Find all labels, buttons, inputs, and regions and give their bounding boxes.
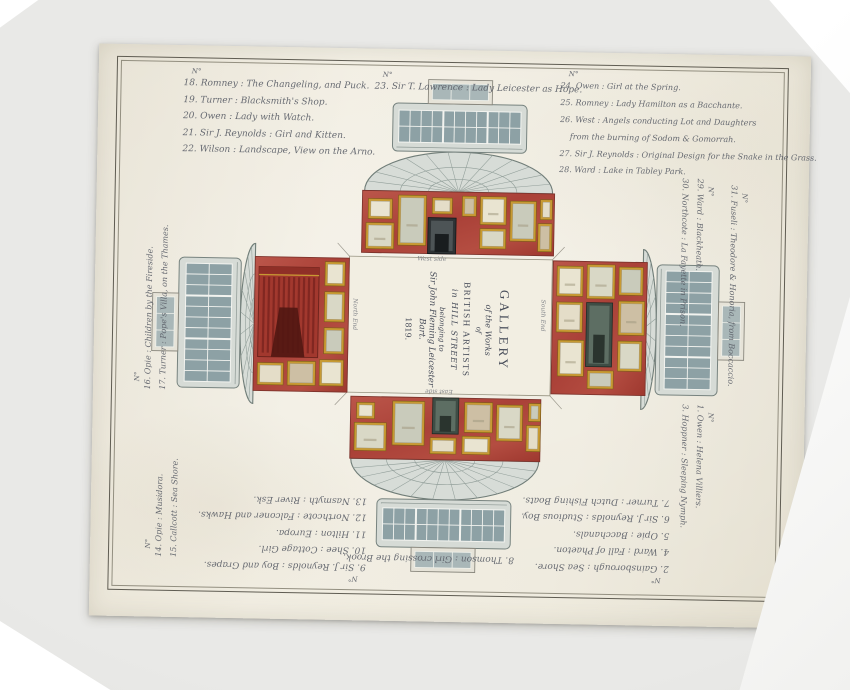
- painting-frame: [356, 402, 374, 418]
- title-line: Sir John Fleming Leicester Bart.: [415, 264, 437, 394]
- canvas-mark: [595, 284, 606, 286]
- catalogue-line: 29. Ward : Blackheath.: [689, 178, 706, 327]
- catalogue-line: 30. Northcote : La Fayette in Prison.: [675, 178, 692, 327]
- catalogue-items: 18. Romney : The Changeling, and Puck.19…: [182, 75, 376, 160]
- painting-frame: [526, 425, 540, 451]
- catalogue-items: 8. Thomson : Girl crossing the Brook.: [334, 548, 514, 568]
- canvas-mark: [565, 361, 575, 363]
- canvas-mark: [518, 224, 528, 226]
- canvas: [327, 264, 342, 283]
- canvas: [260, 365, 281, 382]
- canvas-mark: [402, 427, 415, 429]
- painting-frame: [432, 198, 452, 214]
- painting-frame: [392, 401, 425, 446]
- title-line: of the Works: [482, 265, 493, 395]
- catalogue-line: 17. Turner : Pope's Villa, on the Thames…: [156, 224, 174, 389]
- canvas: [531, 406, 538, 419]
- canvas-mark: [488, 213, 498, 215]
- painting-frame: [587, 371, 613, 389]
- catalogue-items: 14. Opie : Musidora.15. Callcott : Sea S…: [152, 458, 183, 557]
- catalogue-line: 3. Hoppner : Sleeping Nymph.: [675, 404, 692, 528]
- canvas: [356, 425, 383, 448]
- fold-line: [335, 392, 347, 405]
- canvas: [482, 231, 503, 246]
- title-line: belonging to: [436, 264, 446, 394]
- painting-frame: [618, 301, 645, 335]
- canvas: [327, 294, 342, 319]
- canvas: [621, 270, 640, 293]
- canvas-mark: [364, 439, 377, 441]
- catalogue-right-outer: N° 31. Fuseli : Theodore & Honoria, from…: [722, 185, 749, 387]
- catalogue-line: 1. Owen : Helena Villiers.: [690, 404, 707, 528]
- wall-south: [551, 261, 647, 396]
- painting-frame: [619, 267, 644, 295]
- painting-frame: [617, 341, 642, 371]
- canvas: [368, 225, 391, 246]
- canvas-mark: [473, 420, 484, 422]
- photo-background: N° 18. Romney : The Changeling, and Puck…: [0, 0, 850, 690]
- catalogue-line: 7. Turner : Dutch Fishing Boats.: [492, 491, 670, 511]
- wall-east: [350, 396, 541, 461]
- catalogue-left-upper: N° 16. Opie : Children by the Fireside.1…: [133, 224, 174, 390]
- dome-fan: [365, 150, 554, 193]
- painting-frame: [462, 196, 476, 216]
- canvas: [465, 199, 474, 214]
- painting-frame: [319, 360, 343, 386]
- painting-frame: [557, 340, 584, 376]
- painting-frame: [528, 403, 540, 421]
- canvas: [322, 362, 341, 383]
- catalogue-line: 11. Hilton : Europa.: [188, 522, 366, 542]
- fireplace: [428, 218, 457, 255]
- title-line: 1819.: [402, 264, 413, 394]
- canvas: [435, 200, 450, 211]
- title-line: BRITISH ARTISTS: [460, 265, 472, 395]
- canvas: [483, 199, 504, 222]
- plate-title: GALLERY of the Works of BRITISH ARTISTS …: [395, 264, 512, 396]
- canvas: [371, 201, 390, 216]
- door: [432, 398, 459, 434]
- wall-west: [362, 190, 555, 256]
- painting-frame: [540, 200, 552, 220]
- title-line: GALLERY: [494, 265, 512, 395]
- canvas: [290, 364, 313, 383]
- drawing-sheet: N° 18. Romney : The Changeling, and Puck…: [89, 44, 811, 629]
- catalogue-top-right: N° 24. Owen : Girl at the Spring.25. Rom…: [559, 70, 818, 184]
- catalogue-line: 6. Sir J. Reynolds : Studious Boy.: [492, 507, 670, 527]
- catalogue-right-upper: N° 29. Ward : Blackheath.30. Northcote :…: [675, 178, 715, 327]
- canvas-mark: [565, 283, 575, 285]
- catalogue-line: 8. Thomson : Girl crossing the Brook.: [334, 548, 514, 568]
- painting-frame: [464, 402, 493, 433]
- caption-west-side: West side: [417, 255, 446, 263]
- painting-frame: [366, 222, 394, 249]
- catalogue-items: 16. Opie : Children by the Fireside.17. …: [141, 224, 173, 390]
- painting-frame: [398, 195, 427, 246]
- canvas: [621, 304, 643, 333]
- canvas: [467, 405, 490, 430]
- fold-line: [550, 396, 562, 409]
- canvas-mark: [564, 319, 574, 321]
- catalogue-line: 15. Callcott : Sea Shore.: [167, 458, 183, 557]
- catalogue-line: 5. Opie : Bacchanals.: [491, 524, 669, 544]
- canvas: [326, 330, 341, 351]
- catalogue-line: 12. Northcote : Falconer and Hawks.: [189, 506, 367, 526]
- canvas-mark: [374, 238, 385, 240]
- painting-frame: [368, 198, 392, 218]
- painting-frame: [430, 438, 456, 454]
- canvas: [540, 226, 549, 249]
- canvas: [560, 343, 582, 374]
- painting-frame: [587, 265, 616, 300]
- painting-frame: [480, 197, 507, 225]
- painting-frame: [557, 266, 584, 296]
- canvas: [499, 407, 521, 438]
- canvas: [432, 440, 453, 451]
- catalogue-line: 4. Ward : Fall of Phaeton.: [491, 540, 669, 560]
- catalogue-top-center: N° 23. Sir T. Lawrence : Lady Leicester …: [374, 71, 582, 100]
- catalogue-items: 29. Ward : Blackheath.30. Northcote : La…: [675, 178, 707, 327]
- canvas: [589, 267, 613, 296]
- canvas: [528, 428, 537, 449]
- painting-frame: [556, 302, 583, 332]
- catalogue-line: 2. Gainsborough : Sea Shore.: [491, 556, 669, 576]
- fold-line: [337, 243, 349, 256]
- title-line: in HILL STREET: [448, 265, 459, 395]
- painting-frame: [257, 362, 283, 384]
- painting-frame: [324, 328, 344, 354]
- painting-frame: [462, 436, 490, 455]
- catalogue-bottom-left: N° 9. Sir J. Reynolds : Boy and Grapes.1…: [187, 489, 367, 583]
- painting-frame: [510, 201, 537, 241]
- curtain: [258, 266, 320, 357]
- catalogue-bottom-center: 8. Thomson : Girl crossing the Brook.: [334, 548, 514, 568]
- caption-south-end: South End: [539, 300, 547, 332]
- canvas: [395, 404, 423, 443]
- painting-frame: [480, 229, 506, 249]
- catalogue-left-lower: N° 14. Opie : Musidora.15. Callcott : Se…: [144, 458, 183, 558]
- painting-frame: [324, 292, 345, 322]
- canvas: [464, 439, 487, 452]
- canvas: [559, 268, 580, 293]
- catalogue-top-left: N° 18. Romney : The Changeling, and Puck…: [182, 67, 376, 161]
- fold-line: [552, 247, 564, 260]
- painting-frame: [287, 361, 315, 386]
- canvas: [543, 202, 550, 217]
- canvas: [359, 405, 372, 416]
- canvas-mark: [406, 224, 417, 226]
- catalogue-bottom-right: N° 2. Gainsborough : Sea Shore.4. Ward :…: [491, 491, 671, 585]
- canvas: [512, 204, 534, 239]
- canvas: [620, 344, 639, 369]
- painting-frame: [496, 405, 523, 441]
- catalogue-items: 24. Owen : Girl at the Spring.25. Romney…: [559, 78, 818, 183]
- catalogue-right-lower: N° 1. Owen : Helena Villiers.3. Hoppner …: [675, 404, 715, 528]
- caption-north-end: North End: [351, 298, 359, 330]
- wall-north: [253, 256, 349, 392]
- caption-east-side: East side: [425, 388, 453, 396]
- painting-frame: [325, 262, 345, 286]
- canvas: [590, 373, 611, 386]
- catalogue-items: 1. Owen : Helena Villiers.3. Hoppner : S…: [675, 404, 706, 528]
- catalogue-items: 2. Gainsborough : Sea Shore.4. Ward : Fa…: [491, 491, 670, 576]
- canvas: [559, 304, 580, 329]
- door: [585, 302, 612, 366]
- painting-frame: [354, 422, 387, 451]
- catalogue-line: 22. Wilson : Landscape, View on the Arno…: [182, 141, 375, 161]
- canvas: [400, 198, 424, 243]
- canvas-mark: [626, 321, 636, 323]
- canvas-mark: [504, 426, 514, 428]
- painting-frame: [538, 224, 553, 252]
